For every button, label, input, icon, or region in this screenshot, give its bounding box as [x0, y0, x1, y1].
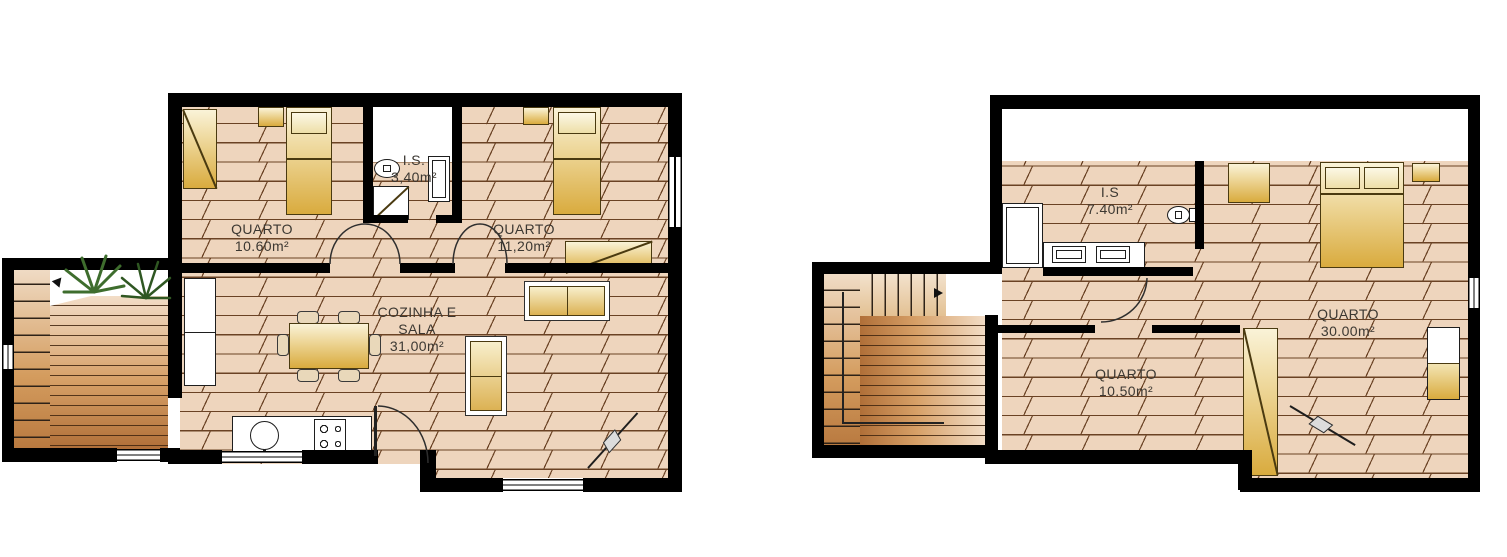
nightstand [1412, 163, 1440, 182]
sink-basin [1100, 250, 1126, 259]
wall-bathroom [1043, 267, 1193, 276]
floor-plan-drawing: QUARTO 10.60m² I.S. 3,40m² QUARTO 11,20m… [0, 0, 1507, 557]
wall-annex-top [812, 262, 990, 274]
stair-direction-arrow [934, 288, 943, 298]
void-area [1002, 109, 1468, 161]
room-label-is-2: I.S 7.40m² [1087, 184, 1133, 218]
wall-left [990, 95, 1002, 274]
stair-handrail [842, 292, 844, 424]
wall-room-top [998, 325, 1095, 333]
vanity-sink [1052, 246, 1086, 263]
toilet-lid [1175, 211, 1183, 218]
wall-step [1238, 450, 1252, 490]
room-label-quarto-4: QUARTO 10.50m² [1095, 366, 1157, 400]
vanity-sink [1096, 246, 1130, 263]
pillow [1364, 167, 1399, 189]
wall-room-top [1152, 325, 1240, 333]
landing-deck [860, 316, 986, 446]
wall-room-left [985, 315, 998, 464]
wall-annex-left [812, 262, 824, 458]
shower-column [1002, 203, 1043, 268]
room-label-quarto-3: QUARTO 30.00m² [1317, 306, 1379, 340]
pillow [1325, 167, 1360, 189]
room-name: I.S [1087, 184, 1133, 201]
room-area: 30.00m² [1317, 323, 1379, 340]
sink-basin [1056, 250, 1082, 259]
desk [1427, 327, 1460, 400]
window [1468, 278, 1480, 308]
room-name: QUARTO [1095, 366, 1157, 383]
room-area: 7.40m² [1087, 201, 1133, 218]
stair-handrail [842, 422, 944, 424]
wall-annex-bottom [812, 445, 990, 458]
double-bed [1320, 162, 1404, 268]
wall-right [1468, 95, 1480, 278]
exterior-mask [985, 464, 1240, 492]
room-area: 10.50m² [1095, 383, 1157, 400]
toilet [1167, 206, 1190, 224]
wall-top [990, 95, 1480, 109]
floor-plan-right: I.S 7.40m² QUARTO 30.00m² QUARTO 10.50m² [0, 0, 1507, 557]
dresser [1228, 163, 1270, 203]
wall-bathroom [1195, 161, 1204, 249]
wall-right [1468, 308, 1480, 492]
shower-column-inner [1006, 207, 1039, 264]
desk-chair [1428, 363, 1459, 399]
door-arc [1100, 277, 1148, 323]
wall-bottom [1240, 478, 1480, 492]
blanket-line [1321, 193, 1403, 195]
room-name: QUARTO [1317, 306, 1379, 323]
wall-bottom [985, 450, 1243, 464]
